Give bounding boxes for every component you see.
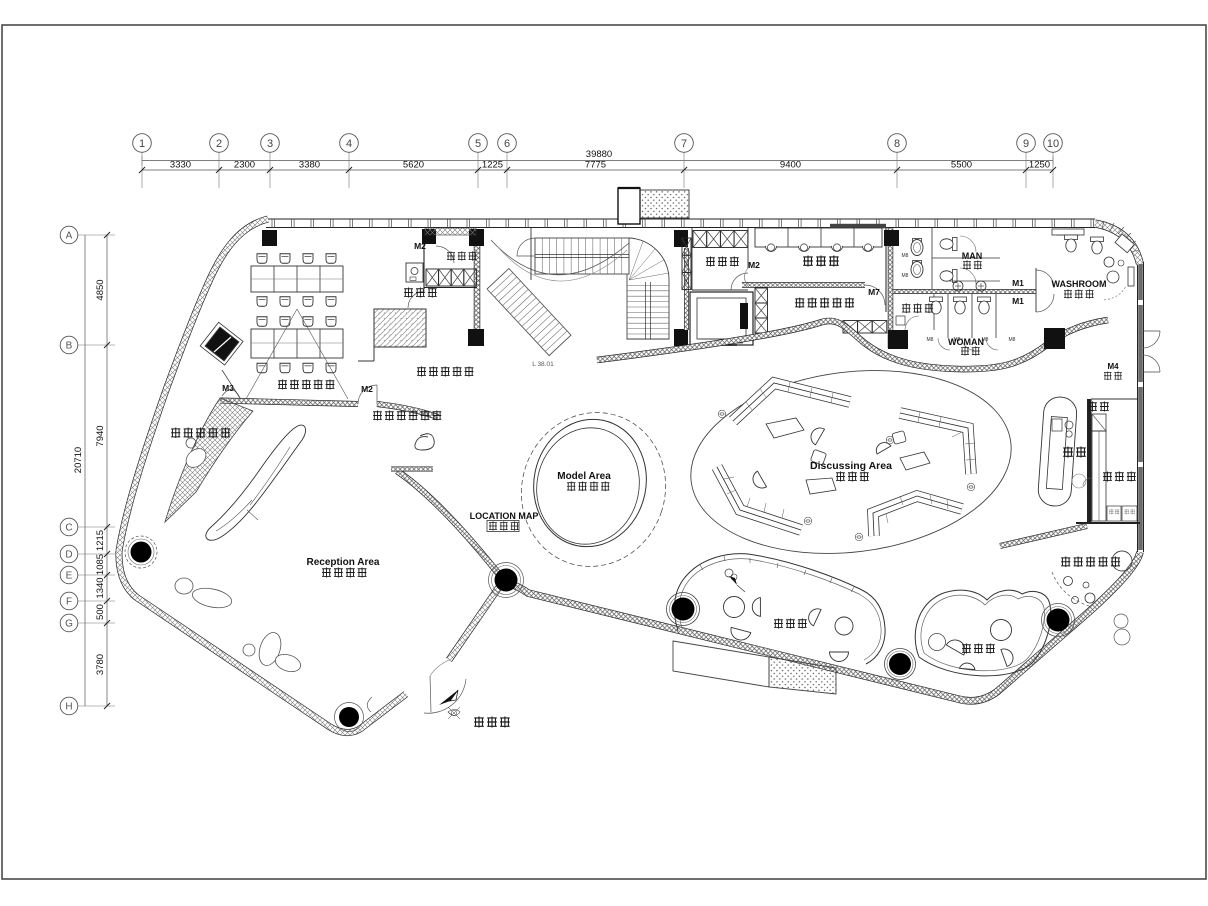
svg-text:H: H <box>65 702 72 713</box>
svg-text:LOCATION MAP: LOCATION MAP <box>470 511 539 521</box>
svg-text:6: 6 <box>504 138 510 150</box>
svg-text:4: 4 <box>346 138 352 150</box>
svg-text:M8: M8 <box>927 337 934 343</box>
svg-text:3: 3 <box>267 138 273 150</box>
svg-text:A: A <box>66 231 73 242</box>
svg-text:2300: 2300 <box>234 160 255 171</box>
svg-text:3780: 3780 <box>95 654 106 675</box>
svg-text:5620: 5620 <box>403 160 424 171</box>
svg-text:WASHROOM: WASHROOM <box>1052 279 1107 289</box>
svg-text:7940: 7940 <box>95 425 106 446</box>
svg-text:9: 9 <box>1023 138 1029 150</box>
svg-text:3330: 3330 <box>170 160 191 171</box>
svg-text:1250: 1250 <box>1029 160 1050 171</box>
svg-text:C: C <box>65 523 72 534</box>
svg-text:G: G <box>65 619 73 630</box>
svg-text:WOMAN: WOMAN <box>948 337 984 347</box>
svg-text:M4: M4 <box>1107 362 1119 371</box>
svg-text:1085: 1085 <box>95 554 106 575</box>
svg-text:L 38.01: L 38.01 <box>532 361 554 368</box>
svg-text:3380: 3380 <box>299 160 320 171</box>
svg-text:M8: M8 <box>1009 337 1016 343</box>
svg-text:MAN: MAN <box>962 251 983 261</box>
svg-text:Model Area: Model Area <box>557 471 611 482</box>
svg-text:M8: M8 <box>902 273 909 279</box>
svg-text:4850: 4850 <box>95 279 106 300</box>
svg-text:5: 5 <box>475 138 481 150</box>
svg-text:1225: 1225 <box>482 160 503 171</box>
svg-text:M2: M2 <box>361 384 373 394</box>
svg-text:M2: M2 <box>748 260 760 270</box>
svg-text:9400: 9400 <box>780 160 801 171</box>
svg-text:1: 1 <box>139 138 145 150</box>
svg-text:500: 500 <box>95 604 106 620</box>
svg-text:39880: 39880 <box>586 149 612 160</box>
svg-text:10: 10 <box>1047 138 1059 150</box>
svg-text:B: B <box>66 341 73 352</box>
svg-text:M1: M1 <box>1012 278 1024 288</box>
svg-text:M3: M3 <box>222 383 234 393</box>
svg-text:E: E <box>66 571 73 582</box>
svg-text:5500: 5500 <box>951 160 972 171</box>
svg-text:M7: M7 <box>868 287 880 297</box>
svg-text:Reception Area: Reception Area <box>307 557 380 568</box>
svg-text:M2: M2 <box>414 241 426 251</box>
svg-text:20710: 20710 <box>73 447 84 473</box>
svg-text:7: 7 <box>681 138 687 150</box>
svg-text:8: 8 <box>894 138 900 150</box>
svg-text:M1: M1 <box>1012 296 1024 306</box>
svg-text:7775: 7775 <box>585 160 606 171</box>
svg-text:F: F <box>66 597 72 608</box>
svg-text:Discussing Area: Discussing Area <box>810 460 892 472</box>
svg-text:1340: 1340 <box>95 577 106 598</box>
svg-text:2: 2 <box>216 138 222 150</box>
svg-text:M8: M8 <box>902 253 909 259</box>
svg-text:1215: 1215 <box>95 530 106 551</box>
svg-text:D: D <box>65 550 72 561</box>
